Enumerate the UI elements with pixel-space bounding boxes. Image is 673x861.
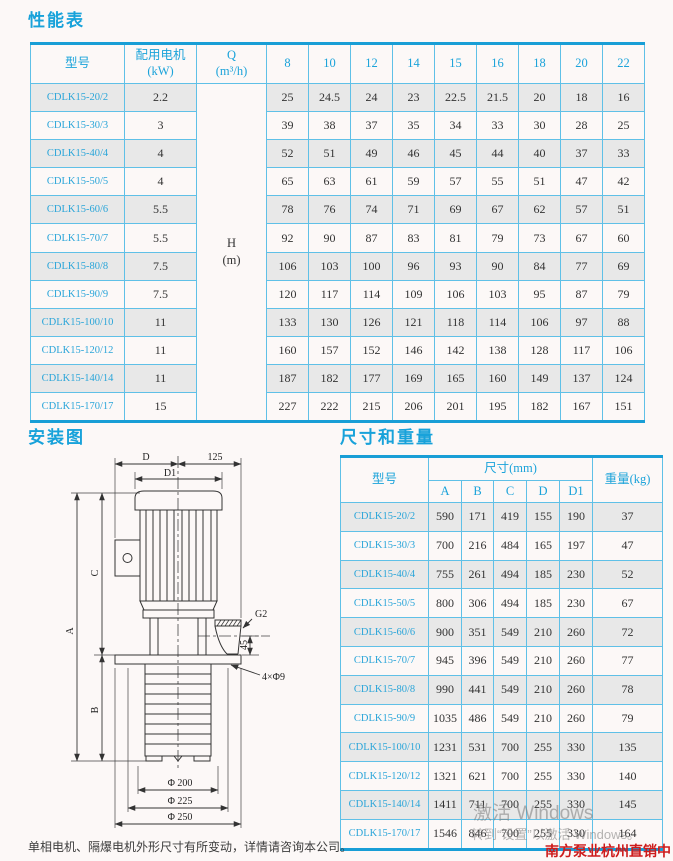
head-value-cell: 157: [309, 336, 351, 364]
head-value-cell: 146: [393, 336, 435, 364]
perf-table-row: CDLK15-120/12111601571521461421381281171…: [31, 336, 645, 364]
head-value-cell: 84: [519, 252, 561, 280]
dim-label-holes: 4×Φ9: [262, 672, 285, 683]
head-value-cell: 195: [477, 393, 519, 422]
dimension-value-cell: 216: [462, 531, 494, 560]
dimension-value-cell: 210: [527, 618, 560, 647]
model-cell: CDLK15-40/4: [341, 560, 429, 589]
head-value-cell: 60: [603, 224, 645, 252]
head-value-cell: 106: [267, 252, 309, 280]
dims-table-row: CDLK15-20/259017141915519037: [341, 503, 663, 532]
head-value-cell: 81: [435, 224, 477, 252]
head-value-cell: 142: [435, 336, 477, 364]
head-value-cell: 16: [603, 84, 645, 112]
head-value-cell: 47: [561, 168, 603, 196]
head-value-cell: 78: [267, 196, 309, 224]
head-value-cell: 42: [603, 168, 645, 196]
col-header-motor: 配用电机 (kW): [125, 44, 197, 84]
perf-table-row: CDLK15-50/54656361595755514742: [31, 168, 645, 196]
model-cell: CDLK15-20/2: [31, 84, 125, 112]
holes-leader: [231, 665, 260, 675]
motor-kw-cell: 5.5: [125, 196, 197, 224]
weight-value-cell: 47: [593, 531, 663, 560]
weight-value-cell: 145: [593, 790, 663, 819]
head-value-cell: 34: [435, 112, 477, 140]
head-value-cell: 39: [267, 112, 309, 140]
head-value-cell: 67: [477, 196, 519, 224]
dimension-value-cell: 185: [527, 589, 560, 618]
head-value-cell: 206: [393, 393, 435, 422]
weight-value-cell: 135: [593, 733, 663, 762]
head-value-cell: 152: [351, 336, 393, 364]
dimension-value-cell: 155: [527, 503, 560, 532]
head-value-cell: 167: [561, 393, 603, 422]
dimension-value-cell: 260: [560, 618, 593, 647]
model-cell: CDLK15-60/6: [341, 618, 429, 647]
model-cell: CDLK15-80/8: [341, 675, 429, 704]
head-value-cell: 18: [561, 84, 603, 112]
dimension-value-cell: 185: [527, 560, 560, 589]
motor-kw-cell: 7.5: [125, 280, 197, 308]
head-value-cell: 52: [267, 140, 309, 168]
col-header-d: D: [527, 481, 560, 503]
dimension-value-cell: 700: [494, 819, 527, 849]
dimension-value-cell: 711: [462, 790, 494, 819]
head-value-cell: 182: [519, 393, 561, 422]
dimension-value-cell: 945: [429, 646, 462, 675]
dimension-value-cell: 590: [429, 503, 462, 532]
dim-label-phi200: Φ 200: [168, 778, 193, 789]
dimension-value-cell: 330: [560, 790, 593, 819]
dimension-value-cell: 306: [462, 589, 494, 618]
col-header-model: 型号: [31, 44, 125, 84]
dimension-value-cell: 330: [560, 762, 593, 791]
head-value-cell: 187: [267, 364, 309, 392]
head-value-cell: 215: [351, 393, 393, 422]
head-value-cell: 51: [519, 168, 561, 196]
head-value-cell: 23: [393, 84, 435, 112]
head-value-cell: 77: [561, 252, 603, 280]
head-unit-cell: H(m): [197, 84, 267, 422]
head-value-cell: 20: [519, 84, 561, 112]
head-value-cell: 83: [393, 224, 435, 252]
motor-kw-cell: 2.2: [125, 84, 197, 112]
head-value-cell: 103: [477, 280, 519, 308]
head-value-cell: 30: [519, 112, 561, 140]
cable-entry: [123, 554, 132, 563]
head-value-cell: 160: [477, 364, 519, 392]
dimension-value-cell: 1546: [429, 819, 462, 849]
dims-table-row: CDLK15-40/475526149418523052: [341, 560, 663, 589]
head-value-cell: 28: [561, 112, 603, 140]
dim-label-45: 45: [239, 640, 250, 650]
model-cell: CDLK15-80/8: [31, 252, 125, 280]
col-header-q22: 22: [603, 44, 645, 84]
col-header-q14: 14: [393, 44, 435, 84]
dimension-value-cell: 255: [527, 762, 560, 791]
head-value-cell: 21.5: [477, 84, 519, 112]
col-header-a: A: [429, 481, 462, 503]
model-cell: CDLK15-100/10: [31, 308, 125, 336]
motor-kw-cell: 3: [125, 112, 197, 140]
dim-label-d1: D1: [164, 468, 176, 479]
head-value-cell: 106: [603, 336, 645, 364]
dim-label-c: C: [90, 569, 101, 576]
head-value-cell: 124: [603, 364, 645, 392]
model-cell: CDLK15-60/6: [31, 196, 125, 224]
dimension-value-cell: 700: [429, 531, 462, 560]
head-value-cell: 25: [603, 112, 645, 140]
head-value-cell: 100: [351, 252, 393, 280]
model-cell: CDLK15-70/7: [31, 224, 125, 252]
dimension-value-cell: 846: [462, 819, 494, 849]
col-header-q8: 8: [267, 44, 309, 84]
dimension-value-cell: 255: [527, 733, 560, 762]
pump-foot-right: [194, 756, 210, 761]
head-value-cell: 92: [267, 224, 309, 252]
perf-table-row: CDLK15-140/14111871821771691651601491371…: [31, 364, 645, 392]
footnote: 单相电机、隔爆电机外形尺寸有所变动，详情请咨询本公司。: [28, 838, 352, 855]
model-cell: CDLK15-50/5: [341, 589, 429, 618]
weight-value-cell: 52: [593, 560, 663, 589]
weight-value-cell: 140: [593, 762, 663, 791]
head-value-cell: 79: [477, 224, 519, 252]
weight-value-cell: 77: [593, 646, 663, 675]
perf-table-row: CDLK15-80/87.5106103100969390847769: [31, 252, 645, 280]
head-value-cell: 45: [435, 140, 477, 168]
head-value-cell: 69: [603, 252, 645, 280]
dimension-value-cell: 396: [462, 646, 494, 675]
dim-label-b: B: [90, 706, 101, 713]
head-value-cell: 165: [435, 364, 477, 392]
dimension-value-cell: 330: [560, 733, 593, 762]
model-cell: CDLK15-90/9: [31, 280, 125, 308]
installation-title: 安装图: [28, 423, 85, 448]
dimension-value-cell: 549: [494, 618, 527, 647]
weight-value-cell: 37: [593, 503, 663, 532]
model-cell: CDLK15-50/5: [31, 168, 125, 196]
head-value-cell: 118: [435, 308, 477, 336]
pump-head: [143, 610, 214, 655]
dimension-value-cell: 190: [560, 503, 593, 532]
head-value-cell: 169: [393, 364, 435, 392]
head-value-cell: 90: [477, 252, 519, 280]
g2-leader: [243, 619, 252, 628]
col-header-q16: 16: [477, 44, 519, 84]
head-value-cell: 103: [309, 252, 351, 280]
head-value-cell: 25: [267, 84, 309, 112]
pump-foot-left: [146, 756, 162, 761]
model-cell: CDLK15-140/14: [31, 364, 125, 392]
dimension-value-cell: 260: [560, 646, 593, 675]
dimension-value-cell: 900: [429, 618, 462, 647]
head-value-cell: 88: [603, 308, 645, 336]
head-value-cell: 62: [519, 196, 561, 224]
head-value-cell: 49: [351, 140, 393, 168]
dims-table-row: CDLK15-70/794539654921026077: [341, 646, 663, 675]
model-cell: CDLK15-120/12: [341, 762, 429, 791]
head-value-cell: 35: [393, 112, 435, 140]
dimension-value-cell: 260: [560, 704, 593, 733]
dimension-value-cell: 486: [462, 704, 494, 733]
dimension-value-cell: 255: [527, 790, 560, 819]
col-header-q20: 20: [561, 44, 603, 84]
dimension-value-cell: 494: [494, 589, 527, 618]
weight-value-cell: 79: [593, 704, 663, 733]
col-header-d1: D1: [560, 481, 593, 503]
dims-table-row: CDLK15-140/141411711700255330145: [341, 790, 663, 819]
dimension-value-cell: 210: [527, 675, 560, 704]
col-header-c: C: [494, 481, 527, 503]
head-value-cell: 149: [519, 364, 561, 392]
dimension-value-cell: 549: [494, 675, 527, 704]
model-cell: CDLK15-30/3: [31, 112, 125, 140]
head-value-cell: 96: [393, 252, 435, 280]
head-value-cell: 79: [603, 280, 645, 308]
dimensions-table-title: 尺寸和重量: [340, 423, 435, 448]
head-value-cell: 69: [435, 196, 477, 224]
head-value-cell: 114: [477, 308, 519, 336]
head-value-cell: 71: [393, 196, 435, 224]
dimension-value-cell: 549: [494, 704, 527, 733]
head-value-cell: 128: [519, 336, 561, 364]
head-value-cell: 133: [267, 308, 309, 336]
discharge-port: [215, 620, 241, 654]
head-value-cell: 93: [435, 252, 477, 280]
col-header-q18: 18: [519, 44, 561, 84]
dimension-value-cell: 755: [429, 560, 462, 589]
dimension-value-cell: 1411: [429, 790, 462, 819]
dims-table-row: CDLK15-120/121321621700255330140: [341, 762, 663, 791]
dimension-value-cell: 700: [494, 762, 527, 791]
head-value-cell: 40: [519, 140, 561, 168]
head-value-cell: 65: [267, 168, 309, 196]
head-value-cell: 114: [351, 280, 393, 308]
head-value-cell: 106: [435, 280, 477, 308]
head-value-cell: 151: [603, 393, 645, 422]
perf-table-row: CDLK15-30/33393837353433302825: [31, 112, 645, 140]
motor-kw-cell: 4: [125, 140, 197, 168]
head-value-cell: 38: [309, 112, 351, 140]
dim-label-phi250: Φ 250: [168, 812, 193, 823]
head-value-cell: 109: [393, 280, 435, 308]
model-cell: CDLK15-100/10: [341, 733, 429, 762]
model-cell: CDLK15-30/3: [341, 531, 429, 560]
model-cell: CDLK15-120/12: [31, 336, 125, 364]
installation-diagram: D 125 D1 A C B 45 G2 4×Φ9 Φ 200 Φ 225 Φ …: [30, 448, 300, 840]
head-value-cell: 87: [351, 224, 393, 252]
head-value-cell: 33: [477, 112, 519, 140]
perf-table-row: CDLK15-60/65.5787674716967625751: [31, 196, 645, 224]
perf-table-row: CDLK15-170/17152272222152062011951821671…: [31, 393, 645, 422]
head-value-cell: 160: [267, 336, 309, 364]
dimension-value-cell: 230: [560, 560, 593, 589]
perf-table-row: CDLK15-20/22.2H(m)2524.5242322.521.52018…: [31, 84, 645, 112]
head-value-cell: 201: [435, 393, 477, 422]
col-header-flow: Q (m³/h): [197, 44, 267, 84]
head-value-cell: 126: [351, 308, 393, 336]
perf-table-row: CDLK15-70/75.5929087838179736760: [31, 224, 645, 252]
dimension-value-cell: 351: [462, 618, 494, 647]
dimension-value-cell: 419: [494, 503, 527, 532]
dims-table-row: CDLK15-90/9103548654921026079: [341, 704, 663, 733]
dimension-value-cell: 531: [462, 733, 494, 762]
weight-value-cell: 67: [593, 589, 663, 618]
head-value-cell: 57: [435, 168, 477, 196]
model-cell: CDLK15-20/2: [341, 503, 429, 532]
motor-outline: [115, 491, 222, 610]
model-cell: CDLK15-170/17: [31, 393, 125, 422]
head-value-cell: 90: [309, 224, 351, 252]
head-value-cell: 137: [561, 364, 603, 392]
dimension-value-cell: 700: [494, 733, 527, 762]
head-value-cell: 222: [309, 393, 351, 422]
model-cell: CDLK15-140/14: [341, 790, 429, 819]
terminal-box: [115, 540, 140, 576]
motor-kw-cell: 11: [125, 364, 197, 392]
motor-kw-cell: 7.5: [125, 252, 197, 280]
dim-label-d: D: [142, 452, 149, 463]
weight-value-cell: 78: [593, 675, 663, 704]
dim-label-125: 125: [208, 452, 223, 463]
motor-kw-cell: 5.5: [125, 224, 197, 252]
head-value-cell: 51: [309, 140, 351, 168]
flange-hatch: [217, 620, 241, 626]
dimension-value-cell: 210: [527, 704, 560, 733]
dimension-value-cell: 197: [560, 531, 593, 560]
perf-table-row: CDLK15-40/44525149464544403733: [31, 140, 645, 168]
head-value-cell: 106: [519, 308, 561, 336]
dims-table-row: CDLK15-30/370021648416519747: [341, 531, 663, 560]
head-value-cell: 227: [267, 393, 309, 422]
dimension-value-cell: 494: [494, 560, 527, 589]
head-value-cell: 87: [561, 280, 603, 308]
dimension-value-cell: 990: [429, 675, 462, 704]
head-value-cell: 24: [351, 84, 393, 112]
catalog-page: 性能表 型号 配用电机 (kW) Q (m³/h) 8 10 12 14: [0, 0, 673, 861]
performance-table: 型号 配用电机 (kW) Q (m³/h) 8 10 12 14 15 16 1…: [30, 42, 645, 423]
col-header-model: 型号: [341, 457, 429, 503]
motor-kw-cell: 11: [125, 336, 197, 364]
extension-lines: [71, 458, 259, 828]
motor-kw-cell: 15: [125, 393, 197, 422]
perf-table-row: CDLK15-90/97.5120117114109106103958779: [31, 280, 645, 308]
dimension-value-cell: 549: [494, 646, 527, 675]
motor-kw-cell: 11: [125, 308, 197, 336]
performance-table-title: 性能表: [28, 6, 85, 31]
head-value-cell: 37: [561, 140, 603, 168]
dimension-value-cell: 1321: [429, 762, 462, 791]
dimension-lines: [77, 464, 250, 824]
head-value-cell: 97: [561, 308, 603, 336]
head-value-cell: 55: [477, 168, 519, 196]
col-header-weight: 重量(kg): [593, 457, 663, 503]
dimensions-table: 型号 尺寸(mm) 重量(kg) A B C D D1 CDLK15-20/25…: [340, 455, 663, 851]
model-cell: CDLK15-70/7: [341, 646, 429, 675]
dimension-value-cell: 1035: [429, 704, 462, 733]
vendor-stamp: 南方泵业杭州直销中心: [545, 841, 673, 861]
head-value-cell: 61: [351, 168, 393, 196]
head-value-cell: 73: [519, 224, 561, 252]
col-header-q10: 10: [309, 44, 351, 84]
dimension-value-cell: 210: [527, 646, 560, 675]
model-cell: CDLK15-40/4: [31, 140, 125, 168]
dimension-value-cell: 621: [462, 762, 494, 791]
perf-header-row: 型号 配用电机 (kW) Q (m³/h) 8 10 12 14 15 16 1…: [31, 44, 645, 84]
head-value-cell: 24.5: [309, 84, 351, 112]
col-header-q12: 12: [351, 44, 393, 84]
dims-table-row: CDLK15-80/899044154921026078: [341, 675, 663, 704]
head-value-cell: 117: [561, 336, 603, 364]
dimension-value-cell: 484: [494, 531, 527, 560]
head-value-cell: 22.5: [435, 84, 477, 112]
head-value-cell: 59: [393, 168, 435, 196]
dim-label-a: A: [65, 627, 76, 635]
head-value-cell: 182: [309, 364, 351, 392]
dimension-value-cell: 230: [560, 589, 593, 618]
col-header-b: B: [462, 481, 494, 503]
head-value-cell: 120: [267, 280, 309, 308]
head-value-cell: 177: [351, 364, 393, 392]
dims-header-row-1: 型号 尺寸(mm) 重量(kg): [341, 457, 663, 481]
head-value-cell: 117: [309, 280, 351, 308]
head-value-cell: 33: [603, 140, 645, 168]
col-header-size-group: 尺寸(mm): [429, 457, 593, 481]
dimension-value-cell: 441: [462, 675, 494, 704]
head-value-cell: 130: [309, 308, 351, 336]
head-value-cell: 74: [351, 196, 393, 224]
dimension-value-cell: 261: [462, 560, 494, 589]
dims-table-row: CDLK15-50/580030649418523067: [341, 589, 663, 618]
model-cell: CDLK15-170/17: [341, 819, 429, 849]
dimension-value-cell: 165: [527, 531, 560, 560]
col-header-q15: 15: [435, 44, 477, 84]
dimension-value-cell: 700: [494, 790, 527, 819]
head-value-cell: 46: [393, 140, 435, 168]
model-cell: CDLK15-90/9: [341, 704, 429, 733]
head-value-cell: 76: [309, 196, 351, 224]
dimension-value-cell: 171: [462, 503, 494, 532]
dim-label-g2: G2: [255, 609, 267, 620]
head-value-cell: 57: [561, 196, 603, 224]
dims-table-row: CDLK15-100/101231531700255330135: [341, 733, 663, 762]
head-value-cell: 44: [477, 140, 519, 168]
head-value-cell: 138: [477, 336, 519, 364]
dimension-value-cell: 1231: [429, 733, 462, 762]
motor-kw-cell: 4: [125, 168, 197, 196]
perf-table-row: CDLK15-100/10111331301261211181141069788: [31, 308, 645, 336]
dimension-value-cell: 800: [429, 589, 462, 618]
head-value-cell: 51: [603, 196, 645, 224]
head-value-cell: 37: [351, 112, 393, 140]
dim-label-phi225: Φ 225: [168, 796, 193, 807]
motor-ribs: [146, 510, 211, 601]
dimension-value-cell: 260: [560, 675, 593, 704]
head-value-cell: 63: [309, 168, 351, 196]
head-value-cell: 121: [393, 308, 435, 336]
dims-table-row: CDLK15-60/690035154921026072: [341, 618, 663, 647]
weight-value-cell: 72: [593, 618, 663, 647]
head-value-cell: 95: [519, 280, 561, 308]
head-value-cell: 67: [561, 224, 603, 252]
